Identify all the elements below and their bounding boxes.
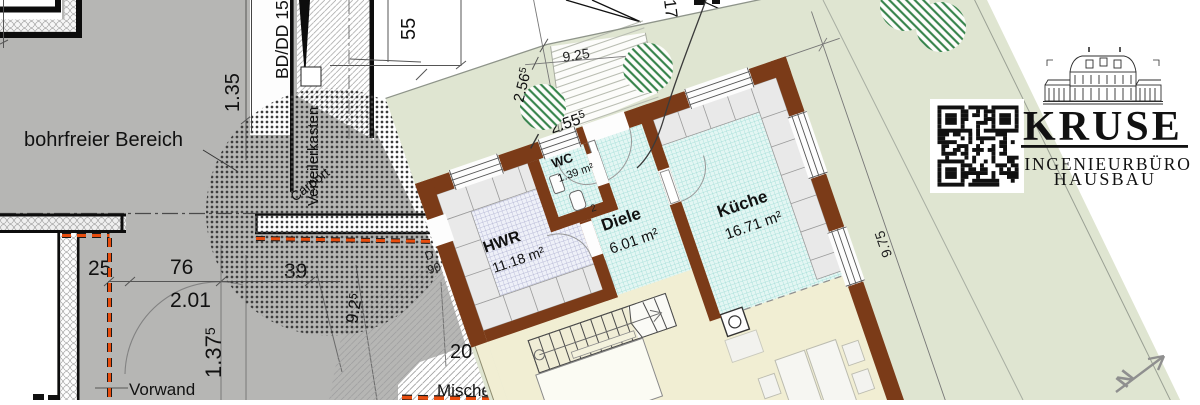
svg-text:BD/DD 15: BD/DD 15 xyxy=(272,0,292,79)
svg-text:20: 20 xyxy=(450,341,472,363)
svg-text:bohrfreier Bereich: bohrfreier Bereich xyxy=(24,129,183,151)
svg-text:KRUSE: KRUSE xyxy=(1023,104,1183,150)
svg-text:HAUSBAU: HAUSBAU xyxy=(1054,169,1156,189)
svg-text:2.01: 2.01 xyxy=(170,289,211,312)
svg-text:76: 76 xyxy=(170,256,193,279)
svg-text:1.35: 1.35 xyxy=(222,73,244,112)
svg-text:55: 55 xyxy=(398,18,420,40)
svg-text:Vorwand: Vorwand xyxy=(129,380,195,399)
